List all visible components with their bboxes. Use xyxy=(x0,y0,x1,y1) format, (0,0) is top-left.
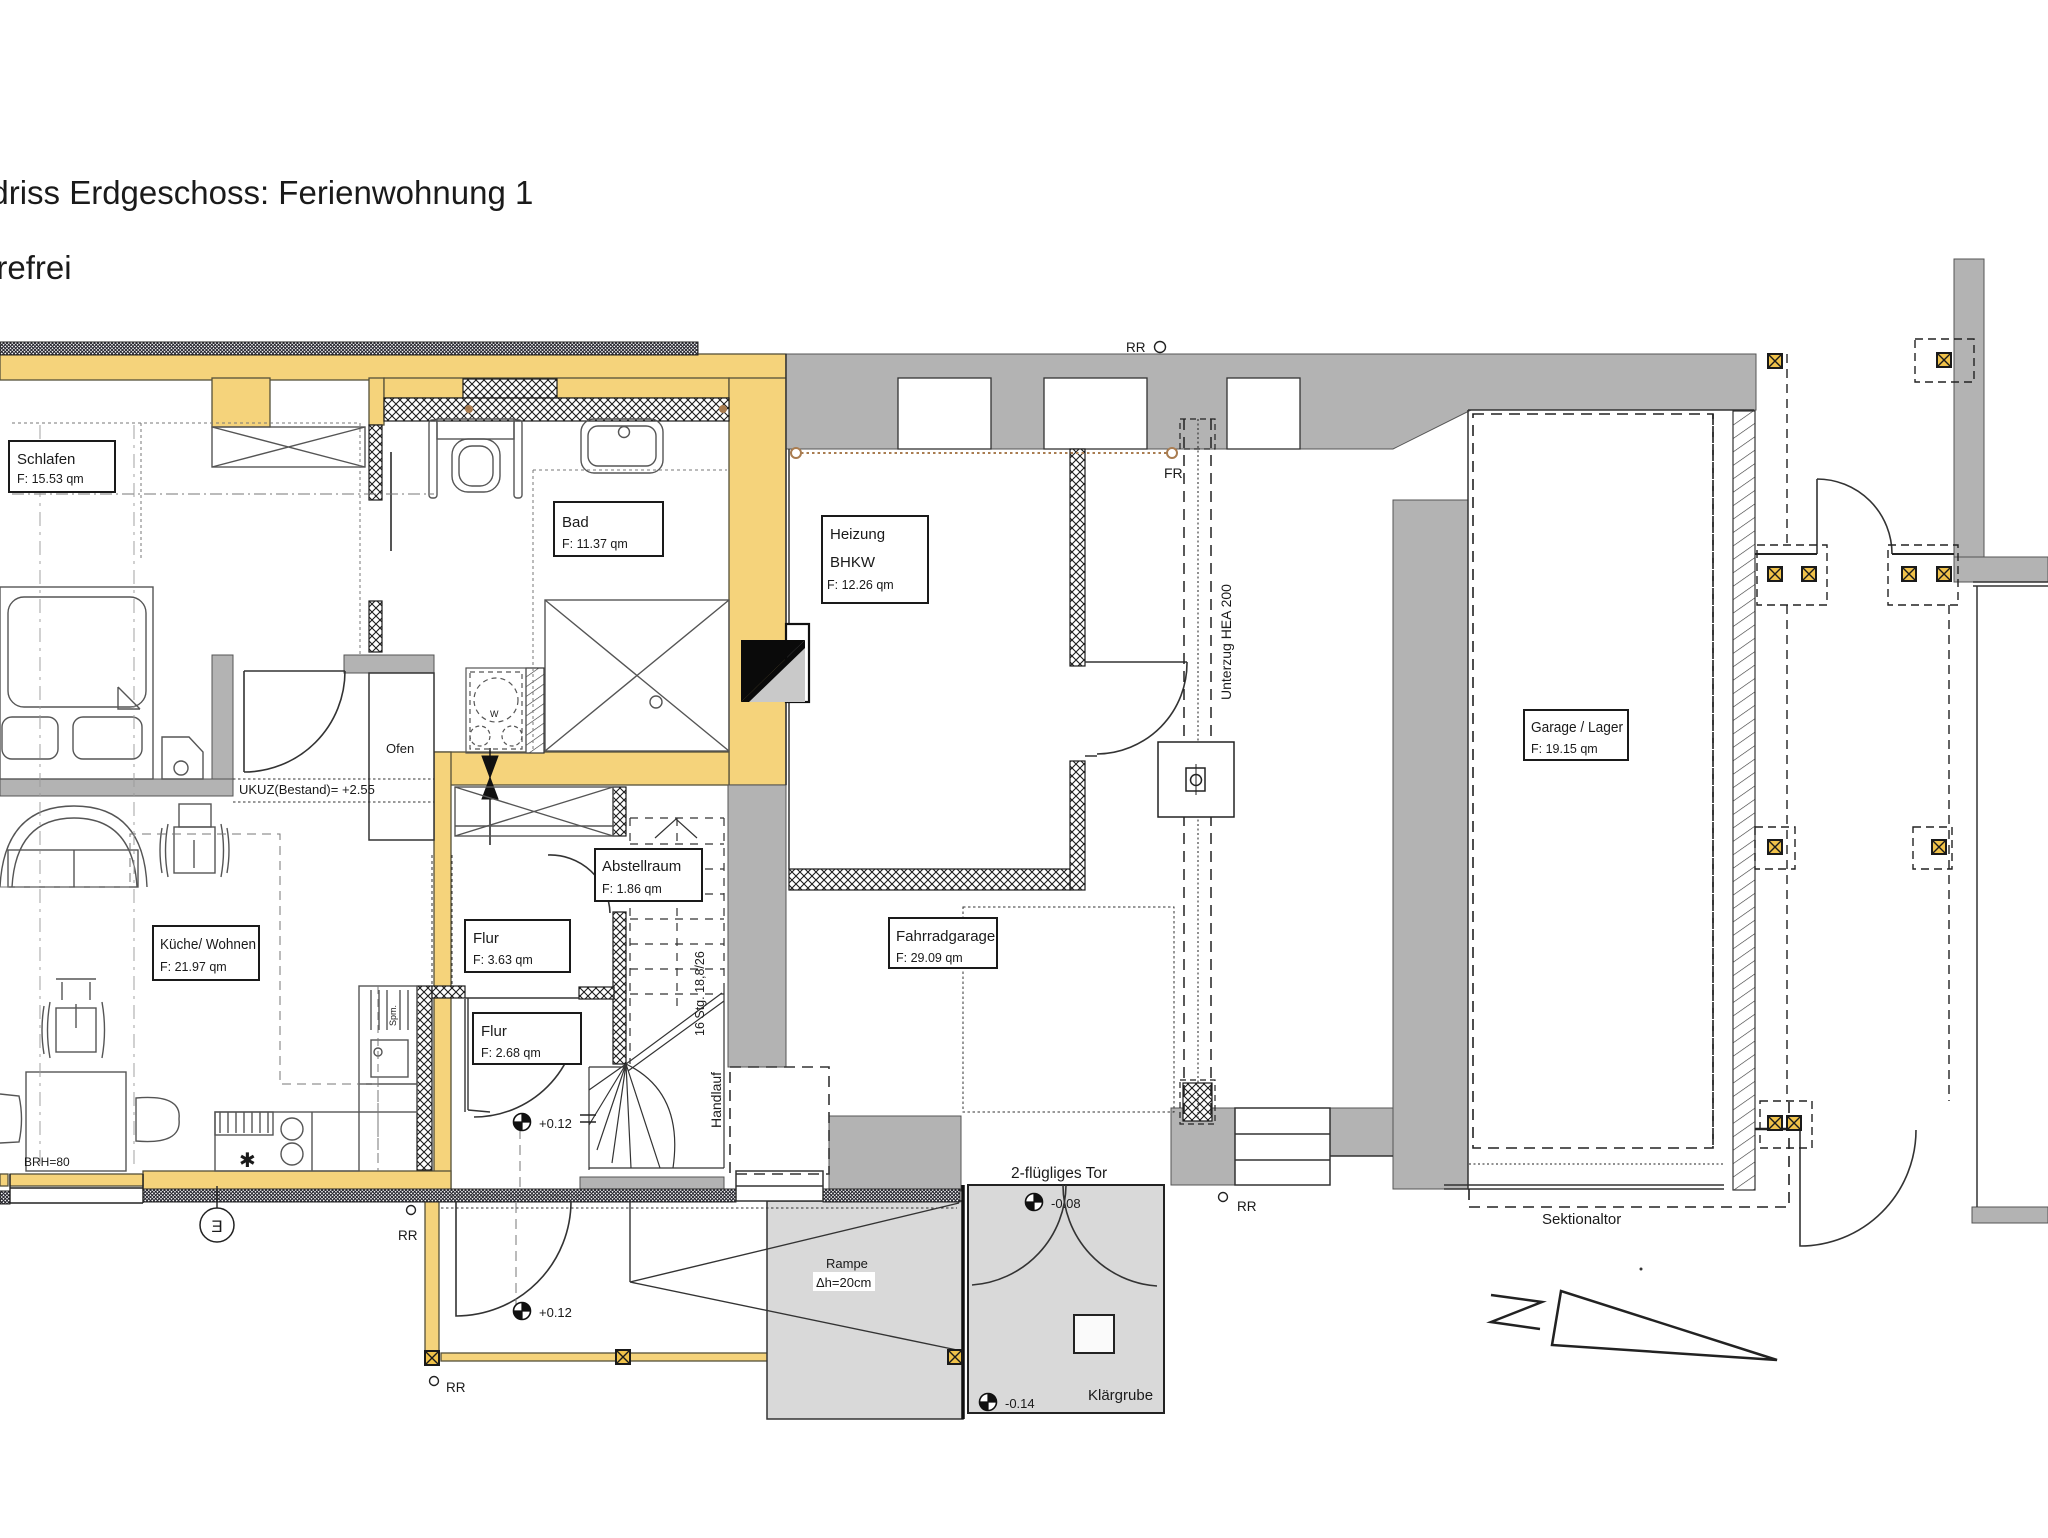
svg-text:Bad: Bad xyxy=(562,514,589,531)
svg-text:RR: RR xyxy=(446,1380,466,1395)
svg-text:Grundriss Erdgeschoss: Ferienw: Grundriss Erdgeschoss: Ferienwohnung 1 xyxy=(0,174,533,211)
svg-text:FR: FR xyxy=(1164,465,1183,481)
svg-text:F: 29.09 qm: F: 29.09 qm xyxy=(896,951,963,965)
svg-text:Spm.: Spm. xyxy=(388,1005,398,1026)
svg-text:Schlafen: Schlafen xyxy=(17,451,75,468)
svg-text:Küche/ Wohnen: Küche/ Wohnen xyxy=(160,936,256,953)
svg-text:✱: ✱ xyxy=(239,1150,256,1172)
svg-text:F: 11.37 qm: F: 11.37 qm xyxy=(562,537,628,551)
svg-text:-0.14: -0.14 xyxy=(1005,1396,1035,1411)
svg-text:+0.12: +0.12 xyxy=(539,1116,572,1131)
svg-text:barrierefrei: barrierefrei xyxy=(0,249,72,286)
svg-text:F: 2.68 qm: F: 2.68 qm xyxy=(481,1046,541,1060)
svg-text:F: 19.15 qm: F: 19.15 qm xyxy=(1531,742,1598,756)
svg-text:Sektionaltor: Sektionaltor xyxy=(1542,1211,1621,1228)
svg-text:Unterzug HEA 200: Unterzug HEA 200 xyxy=(1218,584,1234,700)
svg-text:Heizung: Heizung xyxy=(830,526,885,543)
svg-text:F: 12.26 qm: F: 12.26 qm xyxy=(827,578,894,592)
svg-text:Ofen: Ofen xyxy=(386,741,414,756)
svg-text:Abstellraum: Abstellraum xyxy=(602,858,681,875)
svg-text:BRH=80: BRH=80 xyxy=(24,1155,70,1169)
svg-text:Klärgrube: Klärgrube xyxy=(1088,1387,1153,1404)
svg-text:RR: RR xyxy=(1126,340,1146,355)
svg-text:Rampe: Rampe xyxy=(826,1256,868,1271)
svg-text:16 Stg. 18,8/26: 16 Stg. 18,8/26 xyxy=(693,951,707,1036)
svg-text:BHKW: BHKW xyxy=(830,554,876,571)
svg-text:F: 15.53 qm: F: 15.53 qm xyxy=(17,472,84,486)
svg-text:Flur: Flur xyxy=(473,930,499,947)
svg-text:Handlauf: Handlauf xyxy=(708,1072,724,1128)
svg-text:UKUZ(Bestand)= +2.55: UKUZ(Bestand)= +2.55 xyxy=(239,782,375,797)
svg-text:F: 3.63 qm: F: 3.63 qm xyxy=(473,953,533,967)
svg-text:RR: RR xyxy=(398,1228,418,1243)
svg-text:Fahrradgarage: Fahrradgarage xyxy=(896,928,995,945)
svg-text:Garage / Lager: Garage / Lager xyxy=(1531,719,1623,736)
svg-text:+0.12: +0.12 xyxy=(539,1305,572,1320)
svg-text:Ǝ: Ǝ xyxy=(211,1217,222,1236)
svg-text:Δh=20cm: Δh=20cm xyxy=(816,1275,871,1290)
svg-text:RR: RR xyxy=(1237,1199,1257,1214)
svg-text:F: 1.86 qm: F: 1.86 qm xyxy=(602,882,662,896)
svg-text:2-flügliges Tor: 2-flügliges Tor xyxy=(1011,1165,1107,1182)
svg-text:F: 21.97 qm: F: 21.97 qm xyxy=(160,960,227,974)
svg-text:-0.08: -0.08 xyxy=(1051,1196,1081,1211)
svg-text:Flur: Flur xyxy=(481,1023,507,1040)
svg-text:W: W xyxy=(490,709,499,719)
